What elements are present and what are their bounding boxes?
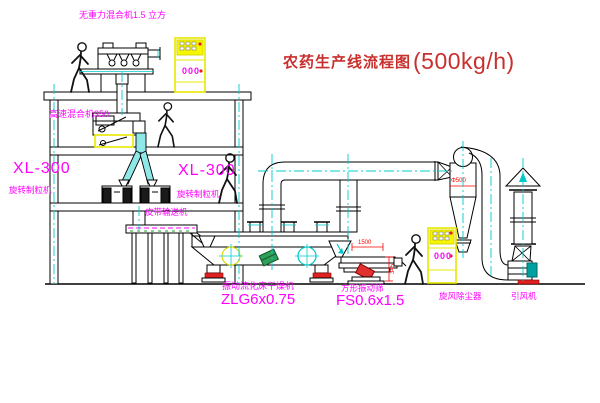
label-cyclone: 旋风除尘器: [439, 292, 482, 301]
label-high-speed-mixer: 高速混合机350: [49, 110, 109, 119]
label-belt-conveyor: 皮带输送机: [145, 208, 188, 217]
label-granulator-right-name: 旋转制粒机: [177, 190, 220, 199]
pesticide-line-flow-drawing: 农药生产线流程图 (500kg/h) 无重力混合机1.5 立方 高速混合机350…: [0, 0, 600, 403]
dimension-sieve-height: 345: [390, 264, 396, 274]
granulator-right: [140, 180, 170, 203]
gravity-free-mixer: [80, 43, 160, 113]
label-sieve-model: FS0.6x1.5: [336, 293, 404, 308]
title-chinese: 农药生产线流程图: [283, 51, 411, 72]
label-dryer-name: 振动流化床干燥机: [222, 282, 294, 291]
control-panel-lower-display: 000: [434, 252, 452, 261]
label-granulator-left-model: XL-300: [13, 161, 71, 177]
person-figure: [158, 103, 174, 147]
label-gravity-mixer: 无重力混合机1.5 立方: [79, 11, 166, 20]
label-granulator-left-name: 旋转制粒机: [9, 186, 52, 195]
dimension-sieve-length: 1500: [358, 240, 371, 246]
square-vibrating-sieve: [329, 241, 406, 284]
title-capacity: (500kg/h): [413, 48, 515, 75]
drawing-title: 农药生产线流程图 (500kg/h): [283, 48, 515, 75]
control-cabinet-upper: [175, 38, 205, 92]
induced-draft-fan: [508, 244, 539, 284]
control-panel-upper-display: 000: [182, 67, 200, 76]
label-granulator-right-model: XL-300: [178, 163, 236, 179]
granulator-left: [102, 180, 132, 203]
dimension-cyclone-diameter: Φ500: [451, 178, 466, 184]
person-figure: [405, 235, 423, 284]
person-figure: [71, 43, 89, 92]
label-induced-draft-fan: 引风机: [511, 292, 537, 301]
label-dryer-model: ZLG6x0.75: [221, 292, 295, 307]
